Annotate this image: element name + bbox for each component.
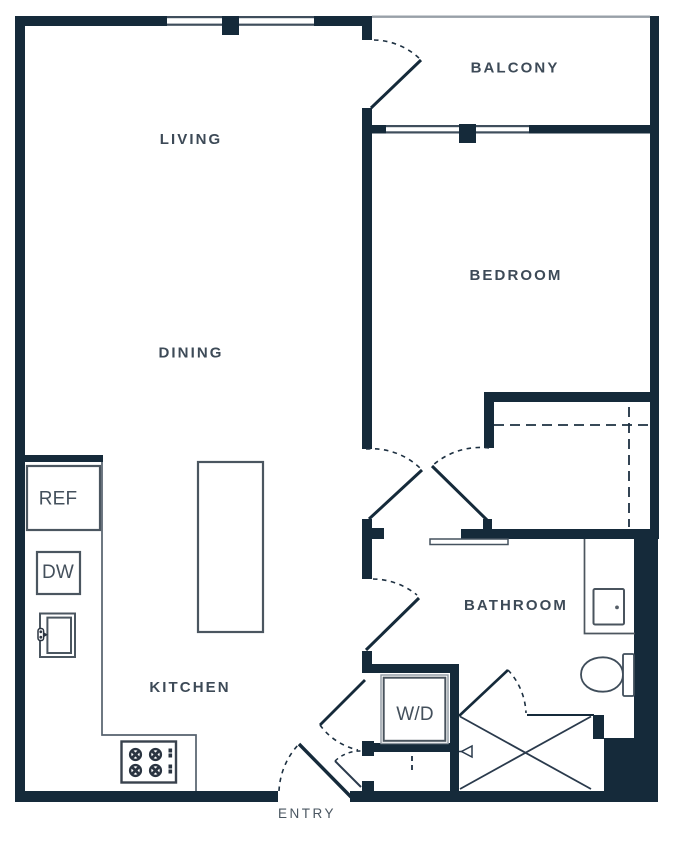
svg-text:DINING: DINING bbox=[158, 345, 223, 362]
svg-text:W/D: W/D bbox=[396, 704, 434, 725]
svg-text:BEDROOM: BEDROOM bbox=[469, 267, 562, 284]
svg-text:ENTRY: ENTRY bbox=[278, 806, 336, 821]
svg-text:DW: DW bbox=[42, 562, 74, 583]
svg-text:KITCHEN: KITCHEN bbox=[149, 679, 230, 696]
svg-text:REF: REF bbox=[39, 489, 78, 510]
svg-text:BALCONY: BALCONY bbox=[471, 60, 560, 77]
svg-text:LIVING: LIVING bbox=[160, 131, 223, 148]
svg-text:BATHROOM: BATHROOM bbox=[464, 597, 568, 614]
